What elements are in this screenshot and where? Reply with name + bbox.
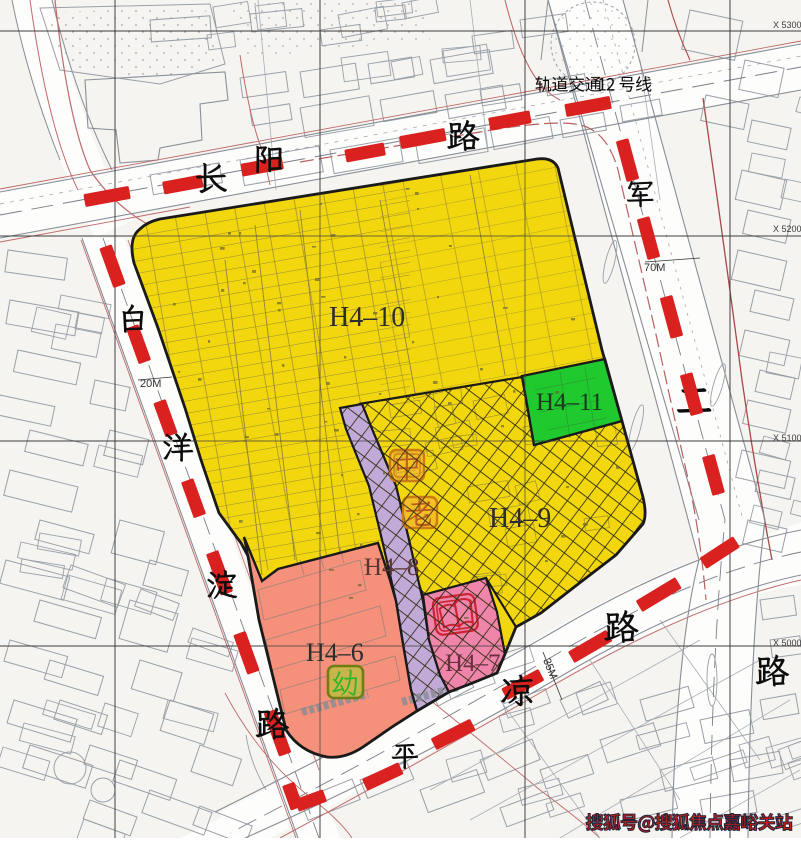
- svg-text:X 5100: X 5100: [773, 433, 801, 443]
- svg-text:X 5200: X 5200: [773, 224, 801, 234]
- svg-text:H4–8: H4–8: [364, 554, 420, 581]
- svg-text:H4–11: H4–11: [536, 389, 603, 416]
- svg-text:H4–9: H4–9: [489, 503, 551, 534]
- svg-text:H4–10: H4–10: [329, 302, 405, 333]
- svg-text:70M: 70M: [644, 262, 665, 274]
- svg-text:H4–7: H4–7: [445, 650, 501, 677]
- svg-text:X 5000: X 5000: [773, 638, 801, 648]
- svg-text:X 5300: X 5300: [773, 20, 801, 30]
- svg-text:H4–6: H4–6: [306, 638, 364, 667]
